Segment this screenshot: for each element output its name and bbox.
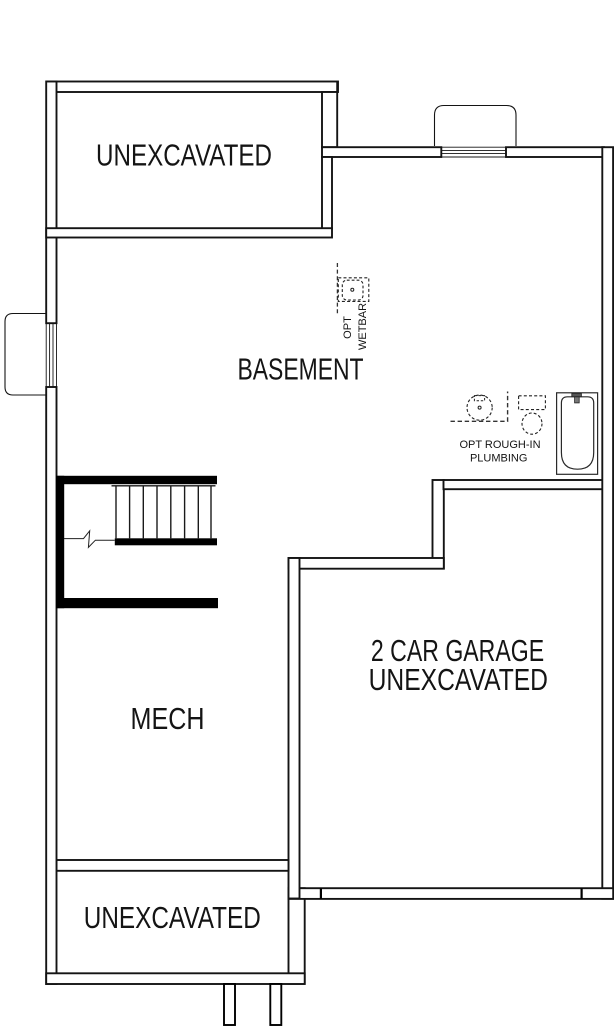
svg-text:PLUMBING: PLUMBING xyxy=(470,453,527,465)
svg-text:MECH: MECH xyxy=(131,700,205,735)
svg-text:UNEXCAVATED: UNEXCAVATED xyxy=(369,662,548,696)
svg-text:WETBAR: WETBAR xyxy=(357,303,369,350)
svg-text:OPT ROUGH-IN: OPT ROUGH-IN xyxy=(459,439,540,451)
svg-text:BASEMENT: BASEMENT xyxy=(237,351,363,386)
svg-text:OPT: OPT xyxy=(342,316,354,339)
svg-text:UNEXCAVATED: UNEXCAVATED xyxy=(96,138,272,173)
svg-text:UNEXCAVATED: UNEXCAVATED xyxy=(84,900,261,934)
